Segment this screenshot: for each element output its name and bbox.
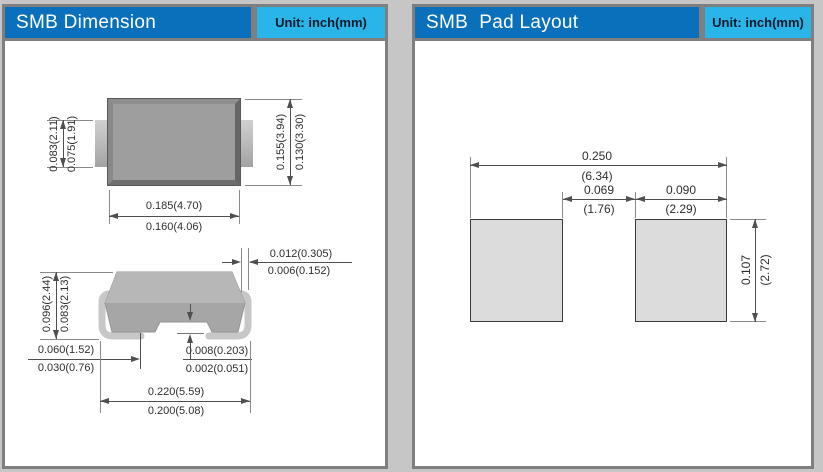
dim-body-width-min: 0.160(4.06)	[146, 221, 202, 233]
arrowhead	[100, 398, 109, 404]
dimension-panel-title: SMB Dimension	[5, 7, 251, 38]
top-view-left-lead	[95, 120, 109, 167]
right-pad	[635, 219, 727, 322]
dim-standoff-min: 0.002(0.051)	[186, 363, 248, 375]
ext-line	[248, 248, 249, 290]
ext-line	[730, 219, 766, 220]
dim-body-height-min: 0.130(3.30)	[294, 114, 306, 170]
dim-lead-thickness-min: 0.006(0.152)	[268, 265, 330, 277]
arrowhead	[718, 196, 727, 202]
dim-pad-width-inch: 0.090	[666, 183, 696, 197]
dim-pad-span-inch: 0.250	[582, 149, 612, 163]
ext-line	[140, 333, 141, 369]
dim-line	[563, 199, 635, 200]
dim-foot-length-max: 0.060(1.52)	[38, 344, 94, 356]
side-view-body-top-face	[105, 272, 245, 303]
ext-line	[245, 185, 302, 186]
dim-lead-thickness-max: 0.012(0.305)	[270, 248, 332, 260]
arrowhead	[131, 356, 140, 362]
dim-body-width-max: 0.185(4.70)	[146, 200, 202, 212]
arrowhead	[626, 196, 635, 202]
arrowhead	[718, 162, 727, 168]
stage: SMB Dimension Unit: inch(mm) SMB Pad Lay…	[0, 0, 823, 472]
ext-line	[40, 272, 113, 273]
dim-line	[290, 99, 291, 185]
arrowhead	[109, 213, 118, 219]
ext-line	[241, 248, 242, 292]
dim-pad-width-mm: (2.29)	[665, 202, 696, 216]
dim-line	[100, 401, 250, 402]
ext-line	[245, 99, 302, 100]
dim-lead-width-min: 0.075(1.91)	[66, 116, 78, 172]
dim-pad-height-inch: 0.107	[739, 255, 753, 285]
arrowhead	[249, 259, 258, 265]
dimension-unit-label: Unit: inch(mm)	[257, 7, 385, 38]
dim-pad-gap-inch: 0.069	[584, 183, 614, 197]
arrowhead	[230, 213, 239, 219]
top-view-right-lead	[239, 120, 253, 167]
dim-pad-span-mm: (6.34)	[581, 169, 612, 183]
dim-side-height-max: 0.096(2.44)	[41, 276, 53, 332]
arrowhead	[752, 313, 758, 322]
dim-line	[470, 165, 727, 166]
arrowhead	[752, 219, 758, 228]
dim-line	[250, 262, 352, 263]
ext-line	[40, 339, 99, 340]
ext-line	[239, 190, 240, 224]
dim-body-height-max: 0.155(3.94)	[275, 114, 287, 170]
arrowhead	[287, 99, 293, 108]
arrowhead	[187, 312, 193, 321]
dim-standoff-max: 0.008(0.203)	[186, 345, 248, 357]
arrowhead	[563, 196, 572, 202]
dim-foot-length-min: 0.030(0.76)	[38, 362, 94, 374]
pad-layout-panel-title: SMB Pad Layout	[415, 7, 699, 38]
dim-line	[755, 219, 756, 322]
dim-overall-length-max: 0.220(5.59)	[148, 386, 204, 398]
left-pad	[470, 219, 563, 322]
pad-layout-unit-label: Unit: inch(mm)	[705, 7, 811, 38]
dim-side-height-min: 0.083(2.13)	[59, 276, 71, 332]
dim-line	[109, 216, 239, 217]
dimension-panel: SMB Dimension Unit: inch(mm)	[2, 4, 388, 469]
dim-line	[635, 199, 727, 200]
dim-line	[183, 359, 252, 360]
ext-line	[730, 321, 766, 322]
arrowhead	[287, 176, 293, 185]
arrowhead	[241, 398, 250, 404]
dim-line	[28, 359, 132, 360]
pad-layout-panel-header: SMB Pad Layout Unit: inch(mm)	[415, 7, 811, 41]
dim-overall-length-min: 0.200(5.08)	[148, 405, 204, 417]
dim-pad-height-mm: (2.72)	[758, 254, 772, 285]
side-view-drawing	[88, 260, 263, 350]
arrowhead	[636, 196, 645, 202]
ext-line	[250, 341, 251, 413]
dim-pad-gap-mm: (1.76)	[583, 202, 614, 216]
arrowhead	[470, 162, 479, 168]
arrowhead	[232, 259, 241, 265]
dimension-panel-header: SMB Dimension Unit: inch(mm)	[5, 7, 385, 41]
dim-lead-width-max: 0.083(2.11)	[48, 116, 60, 171]
top-view-body	[108, 99, 240, 185]
dim-line	[56, 272, 57, 339]
